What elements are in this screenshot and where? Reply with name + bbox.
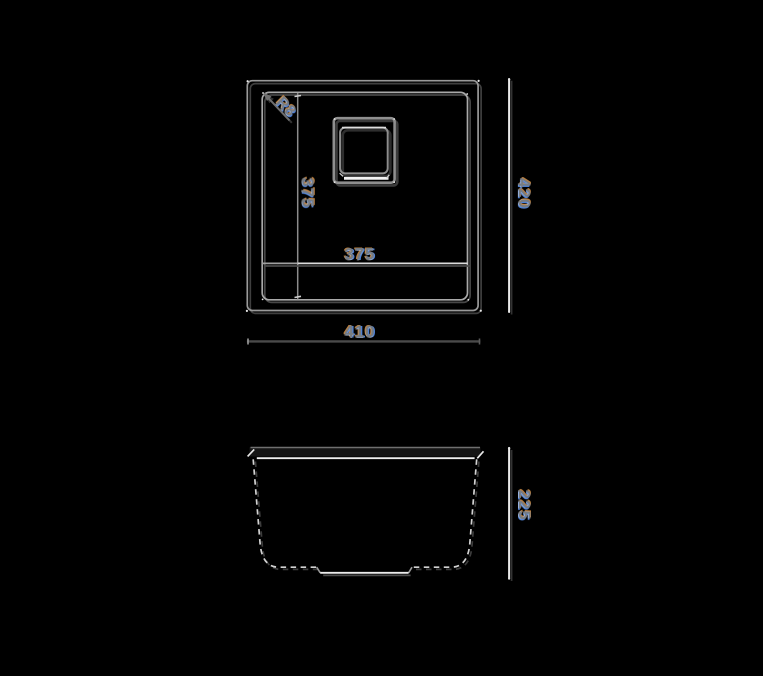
svg-text:375: 375 — [298, 177, 316, 208]
svg-text:375: 375 — [344, 245, 375, 264]
svg-text:420: 420 — [515, 178, 533, 209]
svg-text:410: 410 — [345, 322, 376, 341]
svg-text:225: 225 — [515, 490, 533, 521]
